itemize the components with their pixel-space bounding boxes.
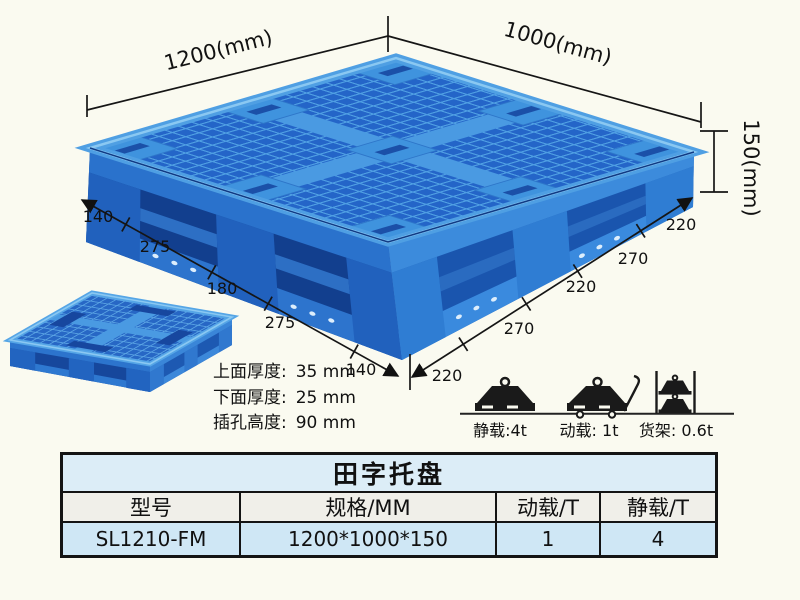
rack-load-label: 货架: 0.6t (639, 421, 713, 440)
table-title: 田字托盘 (63, 455, 715, 493)
load-capacity-icons: 静载:4t 动载: 1t 货架: 0.6t (460, 371, 734, 440)
svg-text:220: 220 (666, 215, 697, 234)
col-header-spec: 规格/MM (241, 493, 497, 523)
note-bottom-thickness: 下面厚度:25 mm (213, 388, 356, 408)
spec-table: 田字托盘 型号 规格/MM 动载/T 静载/T SL1210-FM 1200*1… (60, 452, 718, 558)
cell-dynamic-load: 1 (497, 523, 601, 555)
svg-text:220: 220 (566, 277, 597, 296)
dim-height-line (700, 131, 728, 192)
svg-text:270: 270 (618, 249, 649, 268)
dim-height-label: 150(mm) (739, 119, 763, 216)
svg-text:180: 180 (207, 279, 238, 298)
svg-text:275: 275 (265, 313, 296, 332)
static-load-icon (475, 378, 535, 411)
rack-load-icon (657, 371, 695, 414)
col-header-model: 型号 (63, 493, 241, 523)
svg-text:220: 220 (432, 366, 463, 385)
note-top-thickness: 上面厚度:35 mm (213, 362, 356, 382)
small-pallet-image (10, 293, 232, 392)
dynamic-load-icon (567, 376, 639, 418)
cell-model: SL1210-FM (63, 523, 241, 555)
note-fork-slot-height: 插孔高度:90 mm (213, 413, 356, 433)
thickness-notes: 上面厚度:35 mm 下面厚度:25 mm 插孔高度:90 mm (213, 362, 356, 433)
dim-width-label: 1000(mm) (501, 17, 614, 70)
cell-spec: 1200*1000*150 (241, 523, 497, 555)
static-load-label: 静载:4t (473, 421, 527, 440)
svg-text:275: 275 (140, 237, 171, 256)
svg-text:270: 270 (504, 319, 535, 338)
svg-text:140: 140 (83, 207, 114, 226)
col-header-static-load: 静载/T (601, 493, 715, 523)
col-header-dynamic-load: 动载/T (497, 493, 601, 523)
dynamic-load-label: 动载: 1t (560, 421, 619, 440)
cell-static-load: 4 (601, 523, 715, 555)
